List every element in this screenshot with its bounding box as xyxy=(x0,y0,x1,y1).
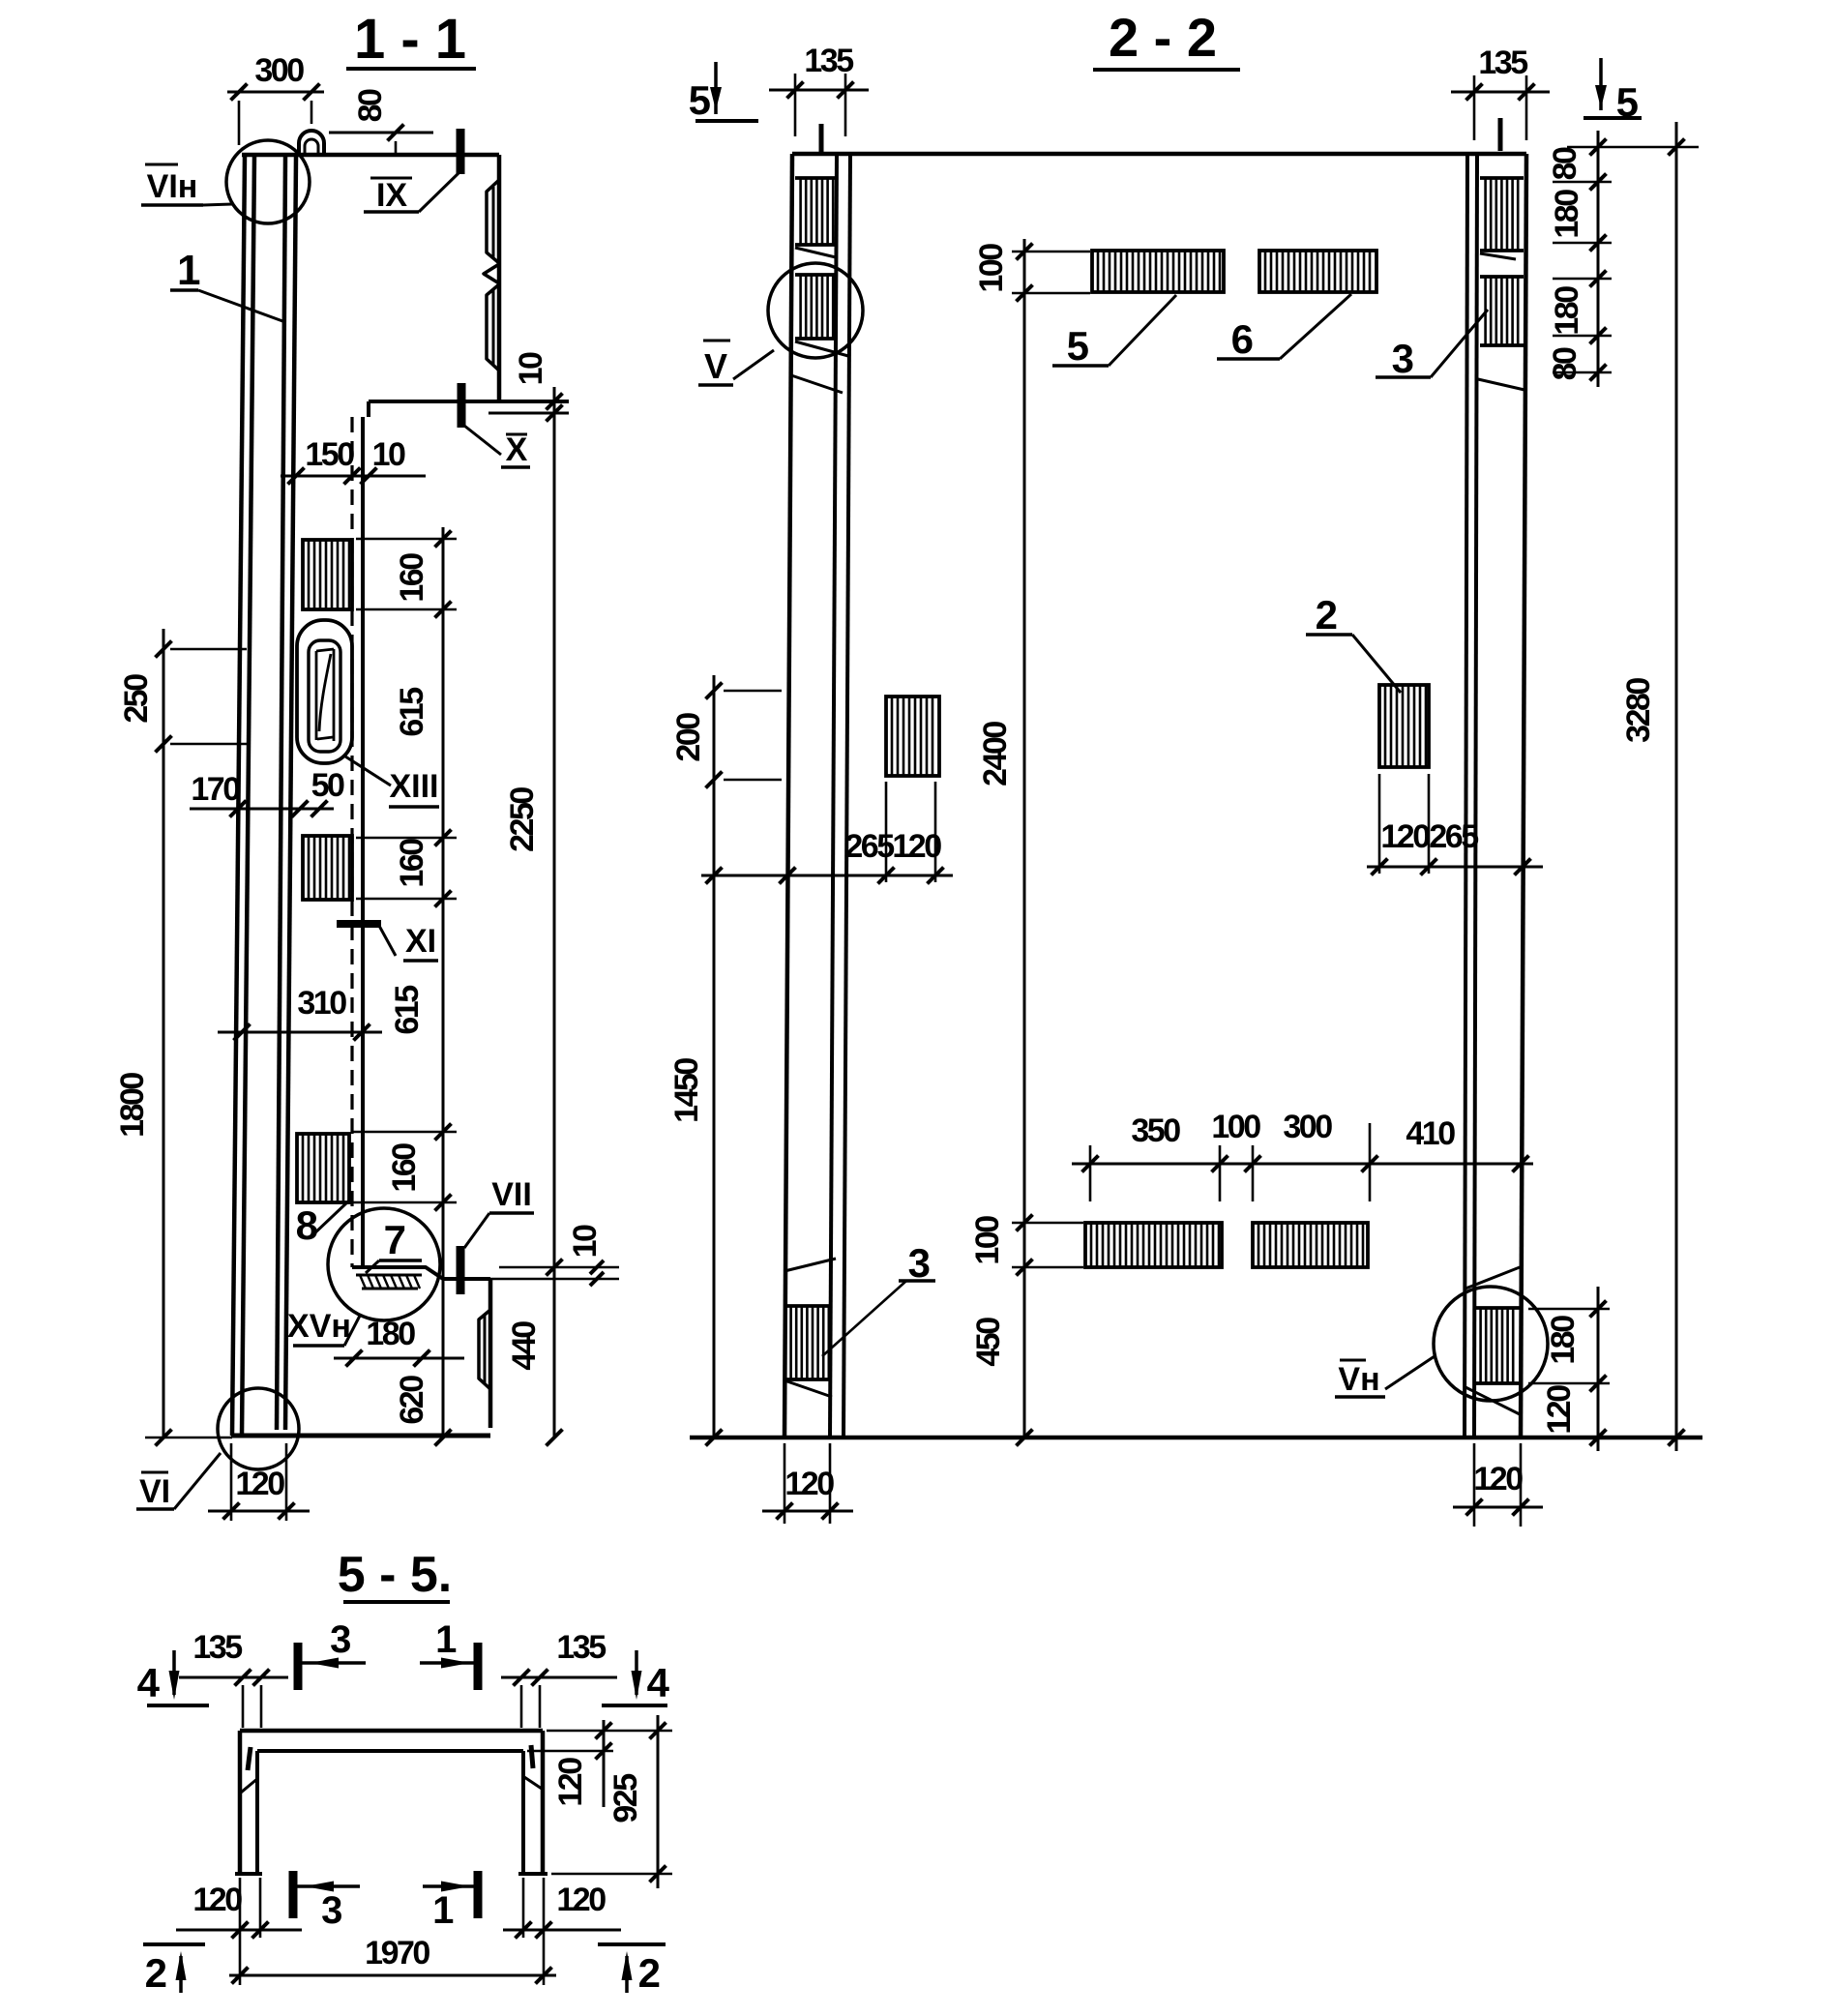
svg-text:10: 10 xyxy=(513,352,549,385)
svg-text:2 - 2: 2 - 2 xyxy=(1109,7,1217,68)
svg-text:120: 120 xyxy=(235,1466,284,1502)
svg-text:VI: VI xyxy=(139,1473,170,1510)
svg-text:3: 3 xyxy=(1392,336,1413,381)
svg-text:1 - 1: 1 - 1 xyxy=(354,8,466,71)
svg-text:IX: IX xyxy=(376,177,407,214)
svg-text:2400: 2400 xyxy=(977,722,1014,786)
svg-text:180: 180 xyxy=(1549,286,1585,336)
svg-text:5 - 5.: 5 - 5. xyxy=(338,1547,453,1603)
svg-text:620: 620 xyxy=(394,1376,430,1425)
svg-text:120: 120 xyxy=(552,1758,589,1807)
svg-text:120: 120 xyxy=(192,1882,242,1918)
svg-text:615: 615 xyxy=(389,986,426,1035)
svg-text:410: 410 xyxy=(1406,1115,1455,1152)
svg-text:1: 1 xyxy=(432,1889,454,1932)
svg-text:350: 350 xyxy=(1131,1112,1180,1149)
svg-text:1800: 1800 xyxy=(114,1073,151,1138)
svg-text:265: 265 xyxy=(1429,818,1478,855)
svg-text:1: 1 xyxy=(177,247,200,294)
svg-text:4: 4 xyxy=(647,1660,670,1705)
svg-text:V: V xyxy=(704,346,727,386)
svg-text:100: 100 xyxy=(973,244,1010,293)
svg-text:80: 80 xyxy=(1547,347,1583,380)
svg-text:10: 10 xyxy=(372,436,405,473)
svg-text:120: 120 xyxy=(892,828,941,865)
svg-text:180: 180 xyxy=(1549,190,1585,239)
svg-text:100: 100 xyxy=(1211,1109,1260,1145)
svg-text:7: 7 xyxy=(384,1217,405,1262)
svg-text:170: 170 xyxy=(191,771,240,808)
svg-text:5: 5 xyxy=(689,77,711,123)
svg-text:6: 6 xyxy=(1231,316,1253,362)
svg-text:200: 200 xyxy=(670,713,707,762)
svg-text:3: 3 xyxy=(908,1240,930,1286)
svg-text:2: 2 xyxy=(1316,592,1337,637)
svg-text:135: 135 xyxy=(556,1629,606,1666)
svg-text:Vн: Vн xyxy=(1338,1361,1379,1398)
svg-text:160: 160 xyxy=(394,839,430,888)
svg-text:80: 80 xyxy=(1547,147,1583,180)
svg-text:2250: 2250 xyxy=(504,787,541,852)
svg-text:1: 1 xyxy=(435,1618,457,1661)
svg-text:5: 5 xyxy=(1067,323,1089,369)
svg-text:120: 120 xyxy=(1541,1385,1578,1435)
svg-text:150: 150 xyxy=(305,436,354,473)
svg-text:VIн: VIн xyxy=(147,168,198,205)
svg-text:8: 8 xyxy=(296,1202,318,1248)
svg-text:310: 310 xyxy=(297,985,346,1022)
svg-text:135: 135 xyxy=(804,43,853,79)
svg-text:2: 2 xyxy=(638,1950,660,1996)
svg-text:100: 100 xyxy=(969,1216,1006,1265)
svg-text:120: 120 xyxy=(784,1466,834,1502)
svg-text:300: 300 xyxy=(254,52,304,89)
svg-text:440: 440 xyxy=(506,1321,543,1371)
svg-text:1970: 1970 xyxy=(365,1935,429,1972)
svg-text:250: 250 xyxy=(118,674,155,724)
svg-text:X: X xyxy=(506,431,528,468)
svg-text:3: 3 xyxy=(321,1889,341,1932)
svg-text:925: 925 xyxy=(607,1774,644,1823)
svg-text:160: 160 xyxy=(394,553,430,603)
svg-text:120: 120 xyxy=(556,1882,606,1918)
svg-text:2: 2 xyxy=(145,1950,166,1996)
svg-text:120: 120 xyxy=(1473,1461,1523,1497)
svg-text:10: 10 xyxy=(567,1225,604,1258)
svg-text:135: 135 xyxy=(1478,44,1527,81)
svg-text:160: 160 xyxy=(386,1143,423,1193)
svg-text:135: 135 xyxy=(192,1629,242,1666)
svg-text:XI: XI xyxy=(405,923,436,960)
svg-text:5: 5 xyxy=(1616,79,1639,125)
svg-text:XIII: XIII xyxy=(389,768,438,805)
svg-text:VII: VII xyxy=(491,1176,532,1213)
svg-text:180: 180 xyxy=(366,1316,415,1352)
svg-text:3: 3 xyxy=(330,1618,350,1661)
svg-text:180: 180 xyxy=(1545,1316,1582,1365)
svg-text:120: 120 xyxy=(1380,818,1430,855)
svg-text:300: 300 xyxy=(1283,1109,1332,1145)
svg-text:3280: 3280 xyxy=(1620,678,1657,743)
svg-text:XVн: XVн xyxy=(287,1308,351,1345)
svg-text:80: 80 xyxy=(352,89,389,122)
svg-text:450: 450 xyxy=(970,1318,1007,1367)
svg-text:1450: 1450 xyxy=(668,1058,705,1123)
svg-text:615: 615 xyxy=(394,688,430,737)
svg-text:4: 4 xyxy=(137,1660,161,1705)
svg-text:50: 50 xyxy=(311,767,344,804)
